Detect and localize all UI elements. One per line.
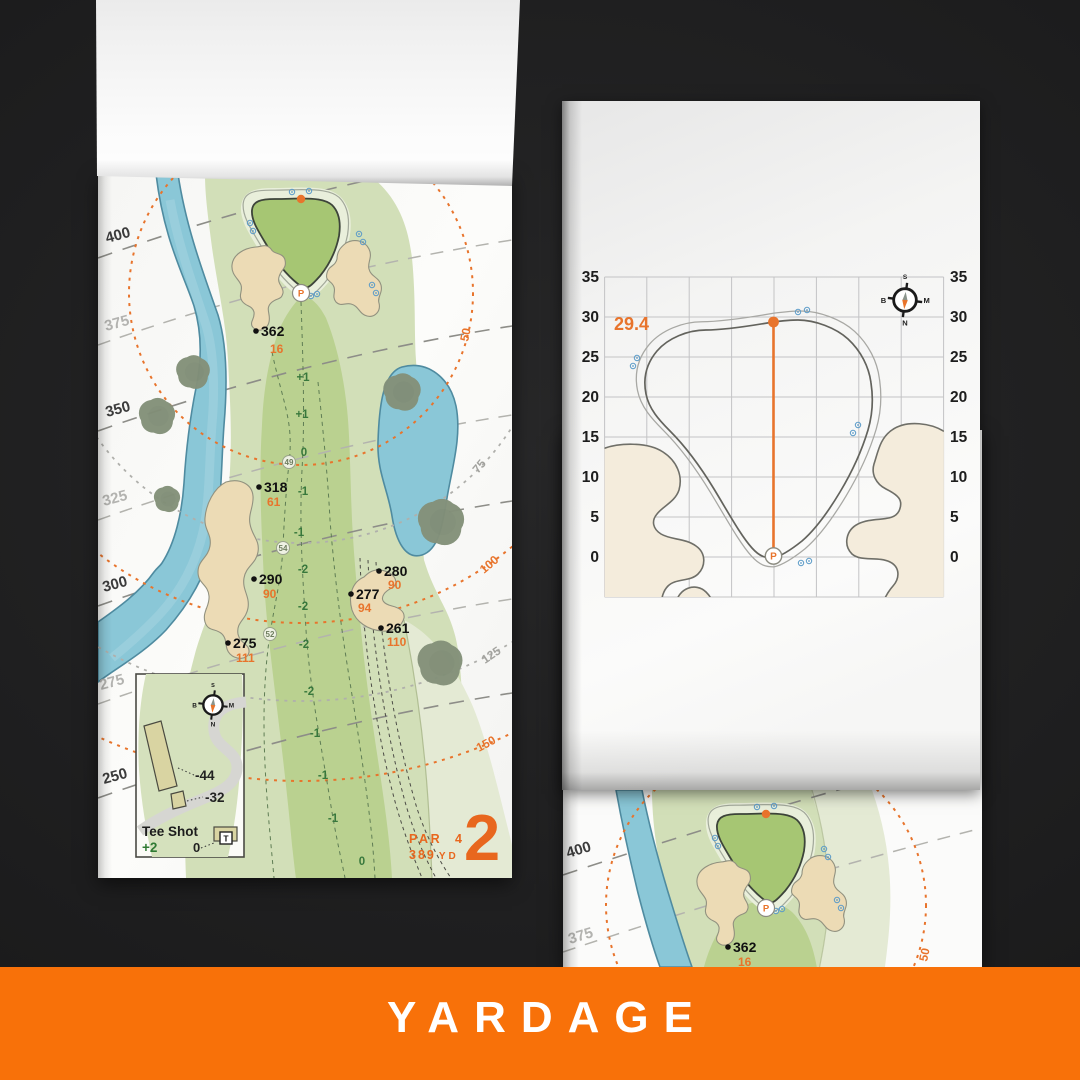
- svg-text:111: 111: [236, 651, 255, 665]
- svg-text:-32: -32: [205, 790, 225, 805]
- svg-text:110: 110: [387, 635, 407, 649]
- svg-text:54: 54: [279, 544, 288, 553]
- svg-text:10: 10: [582, 469, 599, 486]
- svg-text:277: 277: [356, 586, 380, 602]
- svg-text:-2: -2: [304, 686, 314, 698]
- svg-text:P: P: [770, 552, 777, 563]
- svg-text:261: 261: [386, 620, 410, 636]
- svg-text:-1: -1: [298, 486, 309, 498]
- svg-text:90: 90: [388, 578, 402, 592]
- svg-text:-2: -2: [299, 639, 309, 651]
- svg-text:290: 290: [259, 571, 283, 587]
- svg-text:389YD: 389YD: [409, 848, 459, 862]
- svg-text:16: 16: [270, 342, 284, 356]
- svg-text:PAR4: PAR4: [409, 832, 465, 846]
- svg-text:35: 35: [950, 269, 968, 286]
- svg-text:25: 25: [950, 349, 968, 366]
- svg-text:61: 61: [267, 495, 281, 509]
- svg-text:Tee Shot: Tee Shot: [142, 824, 199, 839]
- svg-text:5: 5: [590, 509, 599, 526]
- svg-text:5: 5: [950, 509, 959, 526]
- svg-text:90: 90: [263, 587, 277, 601]
- svg-text:T: T: [223, 834, 229, 844]
- svg-text:318: 318: [264, 479, 288, 495]
- svg-text:0: 0: [193, 840, 200, 855]
- svg-text:0: 0: [301, 447, 307, 459]
- svg-text:-1: -1: [318, 770, 329, 782]
- svg-text:275: 275: [233, 635, 257, 651]
- svg-text:25: 25: [582, 349, 600, 366]
- svg-text:20: 20: [582, 389, 599, 406]
- svg-text:52: 52: [266, 630, 275, 639]
- svg-text:20: 20: [950, 389, 967, 406]
- svg-text:280: 280: [384, 563, 408, 579]
- svg-text:-1: -1: [328, 813, 339, 825]
- svg-text:0: 0: [590, 549, 599, 566]
- svg-text:0: 0: [359, 856, 365, 868]
- svg-text:2: 2: [464, 801, 500, 874]
- svg-text:+2: +2: [142, 840, 157, 855]
- svg-text:15: 15: [950, 429, 968, 446]
- svg-text:+1: +1: [296, 372, 310, 384]
- svg-text:-2: -2: [298, 564, 308, 576]
- svg-text:16: 16: [738, 955, 752, 967]
- svg-text:-1: -1: [310, 728, 321, 740]
- svg-text:94: 94: [358, 601, 372, 615]
- svg-text:-1: -1: [294, 527, 305, 539]
- svg-text:-44: -44: [195, 768, 215, 783]
- svg-text:29.4: 29.4: [614, 314, 649, 334]
- svg-text:362: 362: [261, 323, 285, 339]
- svg-text:+1: +1: [295, 409, 309, 421]
- svg-text:49: 49: [285, 458, 294, 467]
- svg-text:0: 0: [950, 549, 959, 566]
- svg-text:35: 35: [582, 269, 600, 286]
- svg-text:15: 15: [582, 429, 600, 446]
- svg-text:30: 30: [950, 309, 967, 326]
- svg-text:-2: -2: [298, 601, 308, 613]
- svg-text:362: 362: [733, 939, 757, 955]
- svg-text:30: 30: [582, 309, 599, 326]
- svg-text:10: 10: [950, 469, 967, 486]
